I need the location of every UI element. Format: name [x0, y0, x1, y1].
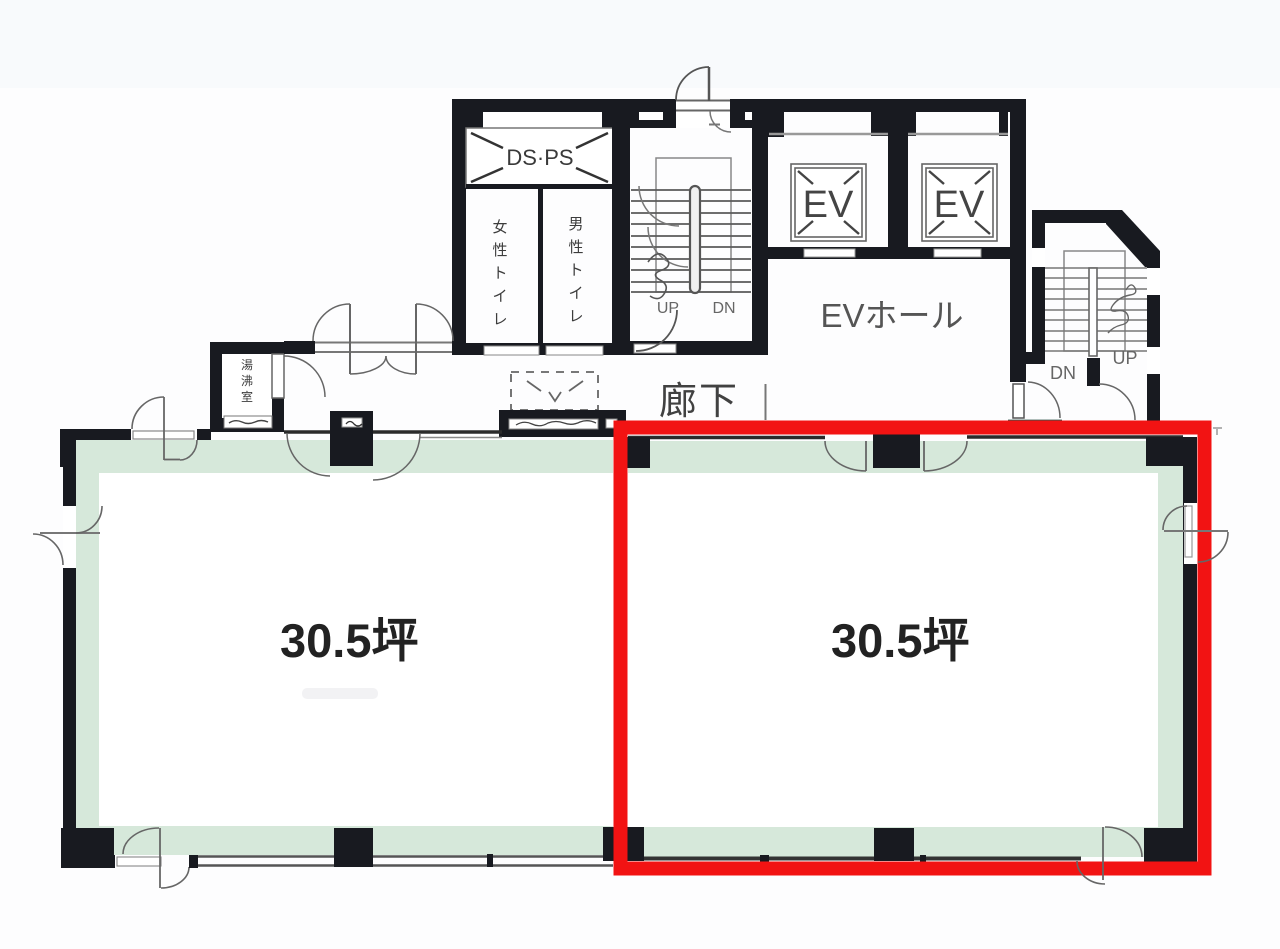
svg-text:DN: DN: [1050, 363, 1076, 383]
svg-text:EVホール: EVホール: [820, 297, 963, 334]
svg-text:湯沸室: 湯沸室: [241, 358, 253, 404]
svg-text:DS·PS: DS·PS: [506, 145, 573, 170]
svg-text:30.5坪: 30.5坪: [280, 614, 418, 667]
svg-text:UP: UP: [657, 300, 679, 317]
svg-text:EV: EV: [803, 184, 854, 226]
svg-text:廊下: 廊下: [659, 381, 739, 423]
svg-text:女性トイレ: 女性トイレ: [492, 218, 507, 328]
svg-text:EV: EV: [934, 184, 985, 226]
svg-text:UP: UP: [1112, 348, 1137, 368]
svg-text:男性トイレ: 男性トイレ: [568, 216, 583, 325]
svg-text:30.5坪: 30.5坪: [831, 614, 969, 667]
svg-text:DN: DN: [712, 300, 735, 317]
